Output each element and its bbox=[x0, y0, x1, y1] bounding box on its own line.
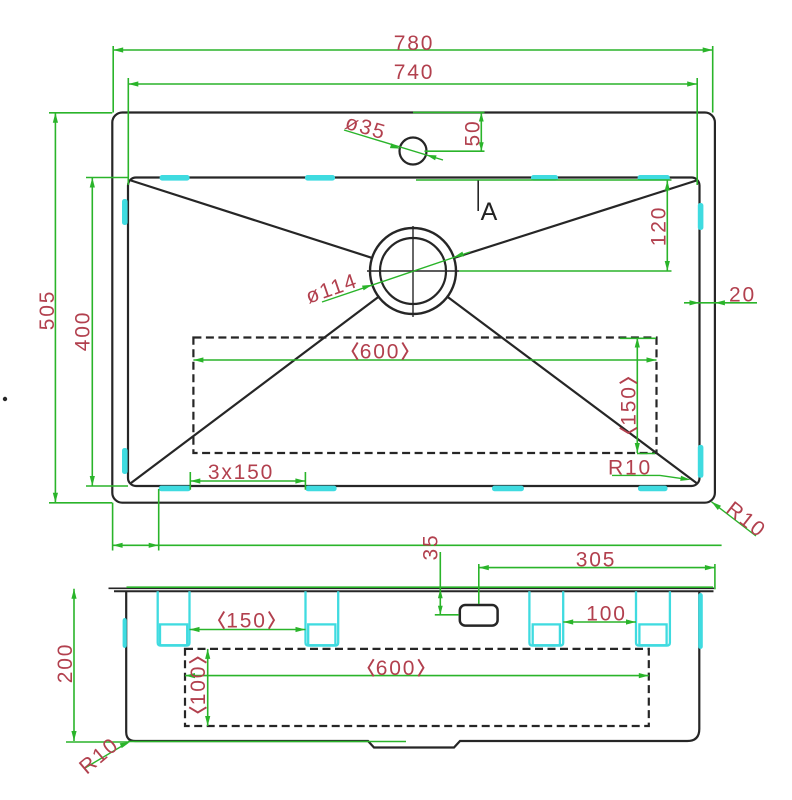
svg-text:200: 200 bbox=[54, 643, 77, 683]
svg-text:600: 600 bbox=[376, 657, 416, 680]
svg-text:780: 780 bbox=[394, 32, 434, 55]
svg-text:600: 600 bbox=[360, 340, 400, 363]
svg-text:R10: R10 bbox=[608, 456, 652, 479]
svg-text:400: 400 bbox=[72, 311, 95, 351]
svg-text:100: 100 bbox=[586, 602, 626, 625]
svg-text:505: 505 bbox=[36, 290, 59, 330]
svg-text:50: 50 bbox=[462, 120, 485, 147]
svg-text:740: 740 bbox=[394, 61, 434, 84]
svg-text:20: 20 bbox=[729, 283, 756, 306]
svg-text:A: A bbox=[481, 198, 498, 226]
svg-text:150: 150 bbox=[226, 609, 266, 632]
svg-text:35: 35 bbox=[420, 534, 443, 561]
svg-text:150: 150 bbox=[618, 385, 641, 425]
svg-text:305: 305 bbox=[576, 548, 616, 571]
svg-text:100: 100 bbox=[187, 665, 210, 705]
svg-text:120: 120 bbox=[648, 206, 671, 246]
svg-text:3x150: 3x150 bbox=[208, 461, 274, 484]
